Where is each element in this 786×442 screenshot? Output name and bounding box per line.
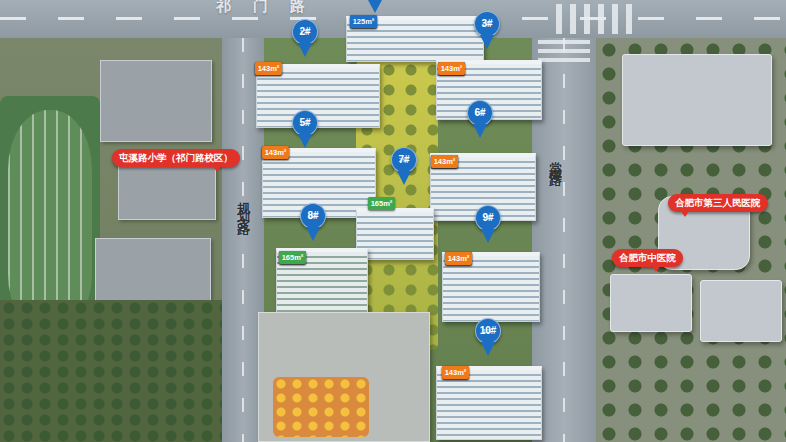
pin-head: 3#17F xyxy=(474,11,500,37)
building-pin-2[interactable]: 2#17F xyxy=(291,19,319,61)
pin-tail xyxy=(298,43,312,57)
building-floors: 17F xyxy=(475,110,485,117)
poi-bubble[interactable]: 合肥市中医院 xyxy=(612,249,683,267)
pin-tail xyxy=(481,342,495,356)
area-tag[interactable]: 125m² xyxy=(350,15,377,28)
pin-tail xyxy=(473,124,487,138)
building-floors: 17F xyxy=(482,21,492,28)
building-pin-3[interactable]: 3#17F xyxy=(473,11,501,53)
building-pin-10[interactable]: 10#10F xyxy=(474,318,502,360)
pin-head: 9#17F xyxy=(475,205,501,231)
pin-head: 10#10F xyxy=(475,318,501,344)
building-floors: 17F xyxy=(300,120,310,127)
building-floors: 26F xyxy=(399,157,409,164)
building-pin-9[interactable]: 9#17F xyxy=(474,205,502,247)
building-floors: 17F xyxy=(483,215,493,222)
building-floors: 10F xyxy=(483,328,493,335)
building-pin-clipped[interactable] xyxy=(368,0,382,13)
pin-tail xyxy=(480,35,494,49)
area-tag[interactable]: 165m² xyxy=(279,251,306,264)
area-tag[interactable]: 143m² xyxy=(255,62,282,75)
area-tag[interactable]: 143m² xyxy=(445,252,472,265)
poi-bubble[interactable]: 合肥市第三人民医院 xyxy=(668,194,768,212)
area-tag[interactable]: 165m² xyxy=(368,197,395,210)
pin-tail xyxy=(298,134,312,148)
residential-site-plan: 祁门路 规划支路 棠樾路 2#17F3#17F5#17F6#17F7#26F8#… xyxy=(0,0,786,442)
pin-head: 6#17F xyxy=(467,100,493,126)
building-pin-5[interactable]: 5#17F xyxy=(291,110,319,152)
pin-tail xyxy=(397,171,411,185)
pin-tail xyxy=(306,227,320,241)
area-tag[interactable]: 143m² xyxy=(438,62,465,75)
building-pin-8[interactable]: 8#10F xyxy=(299,203,327,245)
building-floors: 17F xyxy=(300,29,310,36)
building-floors: 10F xyxy=(308,213,318,220)
area-tag[interactable]: 143m² xyxy=(442,366,469,379)
building-pin-6[interactable]: 6#17F xyxy=(466,100,494,142)
annotation-overlay: 2#17F3#17F5#17F6#17F7#26F8#10F9#17F10#10… xyxy=(0,0,786,442)
poi-bubble[interactable]: 屯溪路小学（祁门路校区） xyxy=(112,149,240,167)
pin-head: 5#17F xyxy=(292,110,318,136)
pin-head: 2#17F xyxy=(292,19,318,45)
building-pin-7[interactable]: 7#26F xyxy=(390,147,418,189)
pin-head: 7#26F xyxy=(391,147,417,173)
pin-tail xyxy=(481,229,495,243)
area-tag[interactable]: 143m² xyxy=(262,146,289,159)
area-tag[interactable]: 143m² xyxy=(431,155,458,168)
pin-head: 8#10F xyxy=(300,203,326,229)
